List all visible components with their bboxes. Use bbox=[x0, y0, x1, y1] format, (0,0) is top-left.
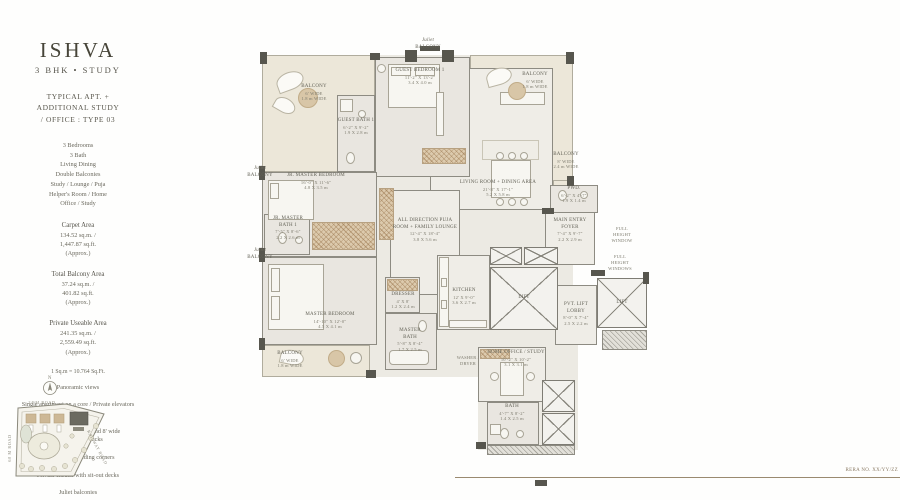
label-line: WINDOWS bbox=[608, 266, 632, 272]
juliet-balcony-label-top: Juliet BALCONY bbox=[415, 38, 441, 51]
room-dim: 8'-0" X 7'-4" bbox=[559, 315, 593, 321]
entry-foyer-label: MAIN ENTRY FOYER 7'-4" X 9'-7" 2.2 X 2.9… bbox=[550, 218, 590, 243]
dining-chair bbox=[508, 198, 516, 206]
kitchen-sink bbox=[441, 278, 447, 287]
rera-number: RERA NO. XX/YY/ZZ bbox=[790, 468, 898, 473]
shaft-box bbox=[542, 413, 575, 445]
building-core bbox=[43, 425, 47, 432]
service-shaft bbox=[524, 247, 558, 265]
wall-pier bbox=[591, 270, 605, 276]
balcony-pouf bbox=[328, 350, 345, 367]
highlighted-tower-podium bbox=[73, 427, 84, 431]
highlighted-tower bbox=[70, 412, 88, 425]
guest-bedroom-label: GUEST BEDROOM 1 11'-2" X 13'-2" 3.4 X 4.… bbox=[395, 68, 444, 86]
feature-item: Office / Study bbox=[8, 199, 148, 209]
jr-master-bath-label: JR. MASTER BATH 1 7'-5" X 8'-6" 2.2 X 2.… bbox=[268, 216, 308, 241]
room-name: MASTER BATH bbox=[393, 328, 427, 341]
dresser-wardrobe bbox=[387, 279, 418, 291]
lift-main-label: LIFT bbox=[518, 295, 529, 302]
label-line: BALCONY bbox=[247, 255, 273, 262]
pillow bbox=[271, 268, 280, 292]
dining-chair bbox=[496, 152, 504, 160]
area-note: (Approx.) bbox=[8, 348, 148, 357]
site-key-plan: N 24 M ROAD 60 M ROAD RAILWAY ROAD bbox=[0, 370, 140, 500]
toilet bbox=[346, 152, 355, 164]
building-wing bbox=[40, 414, 50, 423]
service-shaft bbox=[490, 247, 522, 265]
room-dim: 1.8 m WIDE bbox=[522, 84, 548, 90]
apartment-type: TYPICAL APT. + ADDITIONAL STUDY / OFFICE… bbox=[8, 91, 148, 125]
pillow bbox=[271, 296, 280, 320]
feature-list: 3 Bedrooms 3 Bath Living Dining Double B… bbox=[8, 141, 148, 209]
juliet-balcony-label-left-2: Juliet BALCONY bbox=[247, 248, 273, 261]
duct-shaft bbox=[602, 330, 647, 350]
brand-subtitle: 3 BHK • STUDY bbox=[8, 65, 148, 75]
wash-basin bbox=[358, 110, 366, 118]
room-name: MAIN ENTRY FOYER bbox=[550, 218, 590, 231]
room-name: BALCONY bbox=[553, 152, 579, 159]
kitchen-counter-2 bbox=[449, 320, 487, 328]
room-name: LIFT bbox=[616, 300, 627, 307]
wall-pier bbox=[643, 272, 649, 284]
road-left-label: 60 M ROAD bbox=[7, 434, 12, 461]
type-line: TYPICAL APT. + bbox=[8, 91, 148, 102]
room-name: KITCHEN bbox=[452, 288, 476, 295]
useable-area-block: Private Useable Area 241.35 sq.m. / 2,55… bbox=[8, 319, 148, 356]
room-dim: 1.9 X 2.8 m bbox=[325, 130, 387, 136]
feature-item: Study / Lounge / Puja bbox=[8, 180, 148, 190]
office-chair bbox=[526, 372, 535, 381]
room-dim: 1.9 X 1.4 m bbox=[561, 198, 586, 204]
guest-wardrobe bbox=[422, 148, 466, 164]
fountain bbox=[40, 442, 48, 450]
bath-3-label: BATH 4'-7" X 8'-2" 1.4 X 2.5 m bbox=[499, 404, 524, 422]
kitchen-counter bbox=[439, 257, 449, 327]
area-note: (Approx.) bbox=[8, 298, 148, 307]
dresser-label: DRESSER 4' X 8' 1.2 X 2.4 m bbox=[391, 292, 415, 310]
laundry-label: WASHER / DRYER bbox=[457, 355, 479, 367]
jr-master-wardrobe bbox=[312, 222, 375, 250]
label-line: HEIGHT bbox=[612, 232, 633, 238]
label-line: DRYER bbox=[457, 361, 479, 367]
compass-north-label: N bbox=[48, 376, 52, 381]
area-value: 2,559.49 sq.ft. bbox=[8, 338, 148, 347]
wall-pier bbox=[542, 208, 554, 214]
wall-pier bbox=[259, 338, 265, 350]
feature-item: Helper's Room / Home bbox=[8, 190, 148, 200]
pillow bbox=[270, 183, 279, 199]
wall-pier bbox=[366, 370, 376, 378]
wall-pier bbox=[405, 50, 417, 62]
wall-pier bbox=[370, 53, 380, 60]
room-dim: 1.7 X 2.5 m bbox=[393, 347, 427, 353]
room-dim: 1.2 X 2.4 m bbox=[391, 304, 415, 310]
jr-master-bedroom-label: JR. MASTER BEDROOM 16'-0" X 11'-6" 4.8 X… bbox=[287, 173, 345, 191]
wash-basin bbox=[516, 430, 524, 438]
room-name: GUEST BEDROOM 1 bbox=[395, 68, 444, 75]
road-right-label: RAILWAY ROAD bbox=[86, 429, 109, 465]
footer-rule bbox=[455, 477, 900, 478]
area-note: (Approx.) bbox=[8, 249, 148, 258]
powder-room-label: PWD. 6'-2" X 4'-7" 1.9 X 1.4 m bbox=[561, 186, 586, 204]
pvt-lift-lobby-label: PVT. LIFT LOBBY 8'-0" X 7'-4" 2.5 X 2.2 … bbox=[559, 302, 593, 327]
wall-pier bbox=[260, 52, 267, 64]
room-name: ALL DIRECTION PUJA ROOM + FAMILY LOUNGE bbox=[392, 218, 458, 231]
room-dim: 3.6 X 2.7 m bbox=[452, 300, 476, 306]
feature-item: 3 Bedrooms bbox=[8, 141, 148, 151]
home-office-label: HOME OFFICE / STUDY 10'-2" X 10'-2" 3.1 … bbox=[487, 350, 545, 368]
type-line: ADDITIONAL STUDY bbox=[8, 102, 148, 113]
wall-pier bbox=[442, 50, 454, 62]
balcony-right-label: BALCONY 8' WIDE 2.4 m WIDE bbox=[553, 152, 579, 170]
label-line: WINDOW bbox=[612, 238, 633, 244]
wall-pier bbox=[567, 176, 574, 186]
room-dim: 1.8 m WIDE bbox=[301, 96, 327, 102]
guest-bath-label: GUEST BATH 1 6'-2" X 9'-2" 1.9 X 2.8 m bbox=[325, 118, 387, 136]
balcony-tl-label: BALCONY 6' WIDE 1.8 m WIDE bbox=[301, 84, 327, 102]
room-name: LIFT bbox=[518, 295, 529, 302]
kitchen-hob bbox=[441, 300, 447, 309]
dining-chair bbox=[508, 152, 516, 160]
dining-chair bbox=[496, 198, 504, 206]
pool bbox=[21, 425, 32, 443]
balcony-bl-label: BALCONY 6' WIDE 1.8 m WIDE bbox=[277, 351, 303, 369]
room-name: HOME OFFICE / STUDY bbox=[487, 350, 545, 357]
room-dim: 3.8 X 5.6 m bbox=[392, 237, 458, 243]
side-table bbox=[377, 64, 386, 73]
toilet bbox=[500, 428, 509, 439]
room-dim: 3.4 X 4.0 m bbox=[395, 80, 444, 86]
area-value: 241.35 sq.m. / bbox=[8, 329, 148, 338]
shower bbox=[340, 99, 353, 112]
room-dim: 4.8 X 3.5 m bbox=[287, 185, 345, 191]
dining-chair bbox=[520, 198, 528, 206]
area-value: 134.52 sq.m. / bbox=[8, 231, 148, 240]
room-dim: 2.2 X 2.6 m bbox=[268, 235, 308, 241]
feature-item: Living Dining bbox=[8, 160, 148, 170]
room-name: DRESSER bbox=[391, 292, 415, 299]
type-line: / OFFICE : TYPE 03 bbox=[8, 114, 148, 125]
office-chair bbox=[490, 372, 499, 381]
room-name: LIVING ROOM + DINING AREA bbox=[460, 180, 536, 187]
balcony-tr-label: BALCONY 6' WIDE 1.8 m WIDE bbox=[522, 72, 548, 90]
carpet-area-block: Carpet Area 134.52 sq.m. / 1,447.87 sq.f… bbox=[8, 221, 148, 258]
area-label: Total Balcony Area bbox=[43, 270, 113, 280]
room-dim: 3.1 X 3.1 m bbox=[487, 362, 545, 368]
apartment-floor-plan: Juliet BALCONY Juliet BALCONY Juliet BAL… bbox=[250, 40, 680, 490]
room-dim: 2.5 X 2.2 m bbox=[559, 321, 593, 327]
lift-second-label: LIFT bbox=[616, 300, 627, 307]
floorplan-page: { "sidebar": { "brand": "ISHVA", "subtit… bbox=[0, 0, 900, 500]
room-dim: 2.4 m WIDE bbox=[553, 164, 579, 170]
area-value: 401.82 sq.ft. bbox=[8, 289, 148, 298]
juliet-balcony-label-left-1: Juliet BALCONY bbox=[247, 166, 273, 179]
feature-item: Double Balconies bbox=[8, 170, 148, 180]
room-dim: 2.2 X 2.9 m bbox=[550, 237, 590, 243]
room-dim: 5.2 X 5.8 m bbox=[460, 192, 536, 198]
kitchen-label: KITCHEN 12' X 9'-0" 3.6 X 2.7 m bbox=[452, 288, 476, 306]
full-height-window-label-1: FULL HEIGHT WINDOW bbox=[612, 226, 633, 244]
building-wing bbox=[26, 414, 36, 423]
room-dim: 1.8 m WIDE bbox=[277, 363, 303, 369]
dining-chair bbox=[520, 152, 528, 160]
living-dining-label: LIVING ROOM + DINING AREA 21'-8" X 17'-1… bbox=[460, 180, 536, 198]
room-name: MASTER BEDROOM bbox=[305, 312, 354, 319]
area-label: Carpet Area bbox=[8, 221, 148, 231]
room-dim: 1.4 X 2.5 m bbox=[499, 416, 524, 422]
site-plan-drawing: N 24 M ROAD 60 M ROAD RAILWAY ROAD bbox=[0, 370, 140, 500]
full-height-window-label-2: FULL HEIGHT WINDOWS bbox=[608, 254, 632, 272]
area-label: Private Useable Area bbox=[43, 319, 113, 329]
label-line: WASHER / bbox=[457, 355, 479, 361]
puja-lounge-label: ALL DIRECTION PUJA ROOM + FAMILY LOUNGE … bbox=[392, 218, 458, 243]
shower bbox=[490, 424, 501, 435]
room-name: PVT. LIFT LOBBY bbox=[559, 302, 593, 315]
room-name: BALCONY bbox=[522, 72, 548, 79]
room-name: JR. MASTER BEDROOM bbox=[287, 173, 345, 180]
brand-title: ISHVA bbox=[8, 38, 148, 63]
building-wing bbox=[54, 414, 64, 423]
feature-item: 3 Bath bbox=[8, 151, 148, 161]
service-duct-band bbox=[487, 445, 575, 455]
tv-console bbox=[436, 92, 444, 136]
master-bath-label: MASTER BATH 5'-8" X 8'-4" 1.7 X 2.5 m bbox=[393, 328, 427, 353]
room-name: BALCONY bbox=[277, 351, 303, 358]
room-dim: 5'-8" X 8'-4" bbox=[393, 341, 427, 347]
area-value: 37.24 sq.m. / bbox=[8, 280, 148, 289]
label-line: HEIGHT bbox=[608, 260, 632, 266]
label-line: BALCONY bbox=[415, 45, 441, 52]
label-line: BALCONY bbox=[247, 173, 273, 180]
building-core bbox=[57, 425, 61, 432]
wall-pier bbox=[535, 480, 547, 486]
wall-pier bbox=[566, 52, 574, 64]
shaft-box bbox=[542, 380, 575, 412]
master-bedroom-label: MASTER BEDROOM 14'-10" X 12'-0" 4.5 X 4.… bbox=[305, 312, 354, 330]
room-name: JR. MASTER BATH 1 bbox=[268, 216, 308, 229]
balcony-stool bbox=[350, 352, 362, 364]
wall-pier bbox=[476, 442, 486, 449]
room-dim: 4.5 X 4.1 m bbox=[305, 324, 354, 330]
room-name: BALCONY bbox=[301, 84, 327, 91]
area-value: 1,447.87 sq.ft. bbox=[8, 240, 148, 249]
road-top-label: 24 M ROAD bbox=[28, 400, 55, 405]
balcony-area-block: Total Balcony Area 37.24 sq.m. / 401.82 … bbox=[8, 270, 148, 307]
